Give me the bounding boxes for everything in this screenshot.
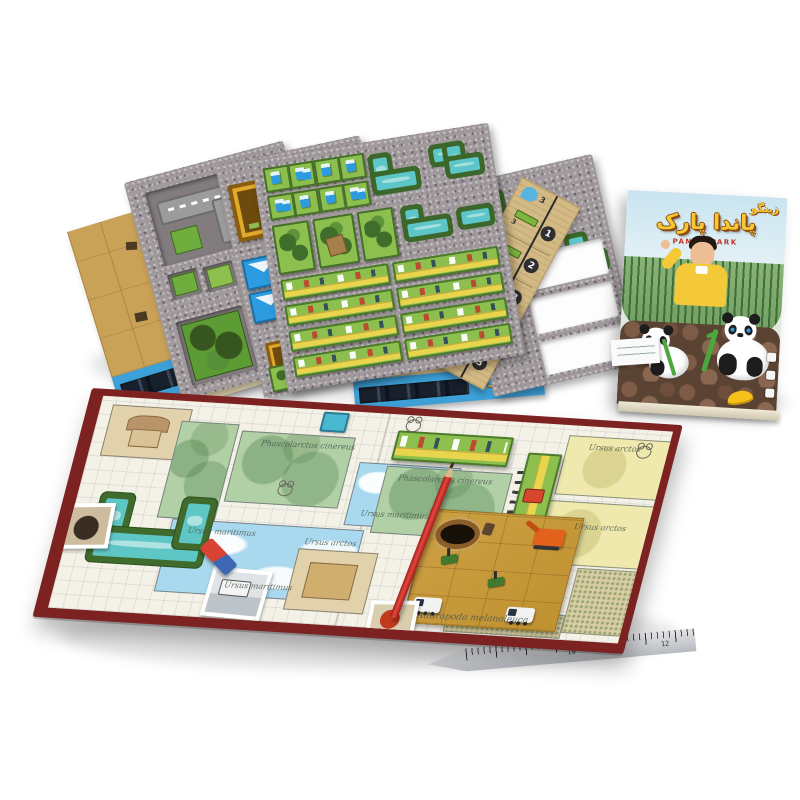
time-icon xyxy=(766,370,775,379)
panda-ear xyxy=(749,313,761,325)
corner-label xyxy=(610,337,660,366)
piece-value: 3 xyxy=(510,217,518,226)
river-tile xyxy=(363,143,429,200)
panda-large-art xyxy=(702,318,771,385)
wheelbarrow xyxy=(488,576,505,588)
zookeeper-art xyxy=(670,238,744,312)
vegetation-tile xyxy=(272,220,316,275)
age-icon xyxy=(765,388,774,397)
panda-ear xyxy=(663,325,674,336)
grass-piece xyxy=(206,264,234,290)
toilet-tile xyxy=(338,153,368,182)
bed-sketch xyxy=(301,562,358,601)
game-box: زینگو پاندا پارک PANDA PARK xyxy=(617,190,788,412)
vegetation-tile xyxy=(356,207,400,262)
thumbnail-row xyxy=(359,378,470,404)
forest-tile xyxy=(180,310,253,382)
excavator xyxy=(532,528,567,548)
toilet-tile-group xyxy=(313,153,368,213)
zookeeper-shirt xyxy=(674,263,728,308)
sepia-room xyxy=(283,548,379,614)
panda-ear xyxy=(639,324,650,335)
bush-piece xyxy=(171,271,199,297)
bush-piece xyxy=(170,225,203,255)
toilet-tile xyxy=(342,180,372,209)
panda-eye-patch xyxy=(743,325,753,337)
river-tile xyxy=(396,198,455,250)
game-board: Phascolarctos cinereus Phascolarctos cin… xyxy=(32,388,682,654)
box-title-persian: پاندا پارک xyxy=(626,209,786,236)
worker-figure xyxy=(481,522,495,536)
water-icon xyxy=(520,184,541,204)
river-tile xyxy=(453,191,496,240)
animal-photo xyxy=(62,507,112,545)
punched-hole xyxy=(167,267,203,300)
vegetation-rock-tile xyxy=(312,213,360,269)
panda-leg xyxy=(746,356,763,377)
placed-water-tile xyxy=(319,412,350,433)
ruler-number: 12 xyxy=(661,640,670,649)
punched-hole xyxy=(176,305,259,386)
bear-doodle xyxy=(404,419,422,433)
speckled-region xyxy=(561,568,642,637)
wheelbarrow xyxy=(441,553,458,565)
river-tile xyxy=(425,134,487,190)
hut-body xyxy=(128,429,163,449)
water-value: 3 xyxy=(538,195,547,206)
toilet-tile-group xyxy=(263,161,318,221)
truck-photo xyxy=(204,570,268,616)
toilet-tile xyxy=(292,188,322,217)
players-icon xyxy=(767,352,776,361)
bamboo-stick xyxy=(701,329,719,373)
photo-card xyxy=(199,566,273,621)
punch-sheet-main xyxy=(251,123,525,393)
animal-figure xyxy=(134,311,147,322)
toilet-tile xyxy=(287,161,317,190)
photo-card xyxy=(364,600,420,638)
board-map: Phascolarctos cinereus Phascolarctos cin… xyxy=(48,396,673,644)
zookeeper-hand xyxy=(661,240,670,249)
panda-ear xyxy=(722,312,734,324)
animal-figure xyxy=(126,242,137,251)
product-photo-scene: پاندا پارک 6 6 پاندا پارک 3 xyxy=(0,0,800,800)
photo-card xyxy=(57,503,116,549)
punched-hole xyxy=(202,260,238,293)
well-hole xyxy=(432,518,484,550)
panda-nose xyxy=(737,333,743,337)
